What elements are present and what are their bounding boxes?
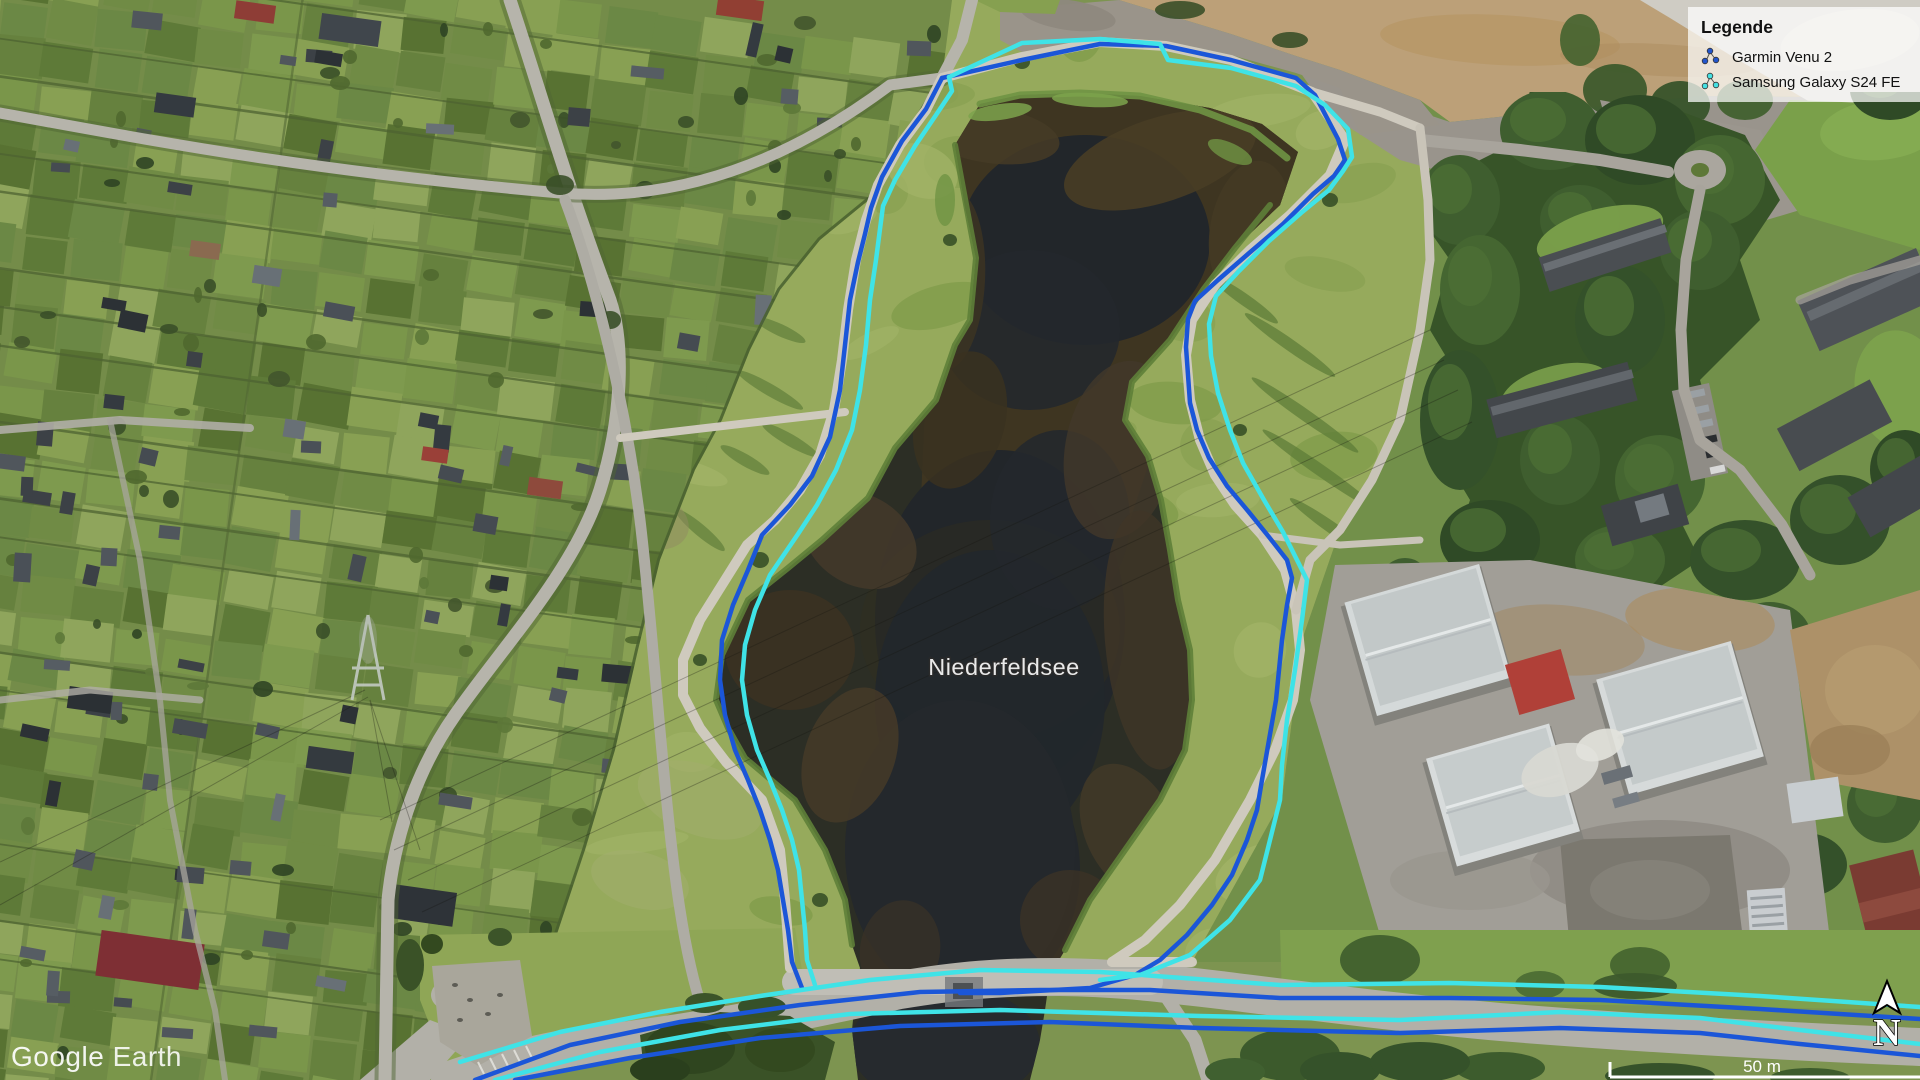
svg-text:50 m: 50 m xyxy=(1743,1057,1781,1076)
svg-text:Samsung Galaxy S24 FE: Samsung Galaxy S24 FE xyxy=(1732,74,1900,91)
svg-text:N: N xyxy=(1873,1012,1900,1054)
svg-text:Niederfeldsee: Niederfeldsee xyxy=(928,654,1080,680)
svg-text:Google Earth: Google Earth xyxy=(11,1041,182,1072)
svg-text:Legende: Legende xyxy=(1701,17,1773,37)
svg-text:Garmin Venu 2: Garmin Venu 2 xyxy=(1732,49,1832,66)
